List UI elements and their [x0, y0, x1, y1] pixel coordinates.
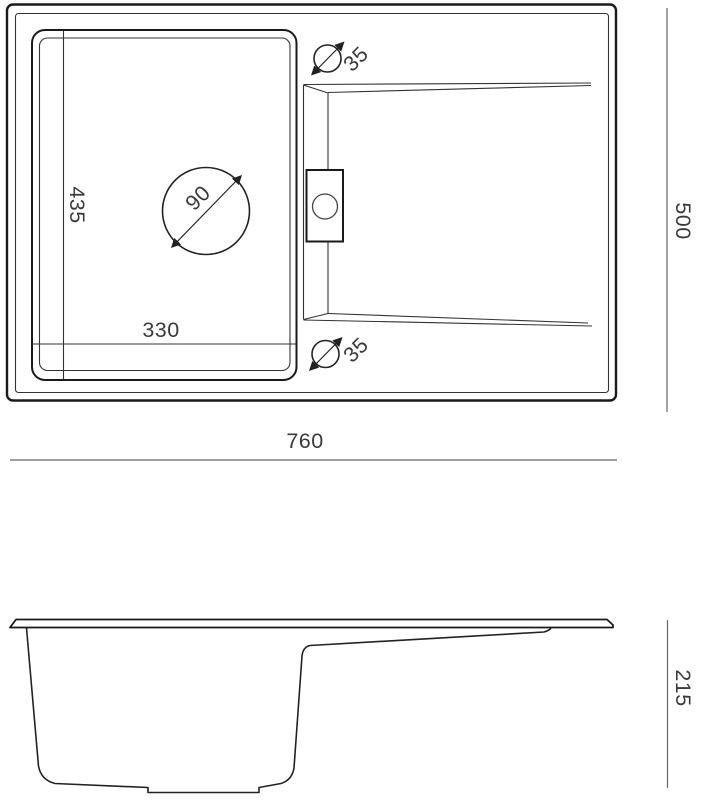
tap-hole-bottom-arrow: [310, 338, 342, 370]
tap-hole-top-label: 35: [339, 42, 374, 77]
side-view: [10, 620, 613, 793]
dimension-overall-depth: 500: [667, 8, 695, 412]
dimension-overall-width: 760: [10, 429, 617, 460]
technical-drawing-page: 90 35 35 435 330 500: [0, 0, 704, 800]
sink-inner-rim: [16, 14, 609, 393]
drain-diameter-arrow: [172, 176, 241, 247]
side-bowl-profile: [27, 628, 552, 793]
bowl-width-label: 330: [142, 318, 179, 342]
side-rim-bar: [10, 620, 613, 628]
sink-drawing-canvas: 90 35 35 435 330 500: [0, 0, 704, 800]
sink-outer-edge: [7, 5, 616, 401]
top-view: 90 35 35 435 330: [7, 5, 616, 401]
dim-label-500: 500: [671, 202, 695, 239]
tap-plate-circle: [313, 194, 338, 219]
dim-label-760: 760: [286, 429, 323, 453]
drainboard: [304, 83, 593, 326]
bowl-depth-label: 435: [65, 186, 89, 223]
dimension-height: 215: [668, 620, 696, 788]
dim-label-215: 215: [671, 669, 695, 706]
tap-hole-bottom-label: 35: [339, 333, 374, 368]
drain-diameter-label: 90: [181, 181, 216, 216]
